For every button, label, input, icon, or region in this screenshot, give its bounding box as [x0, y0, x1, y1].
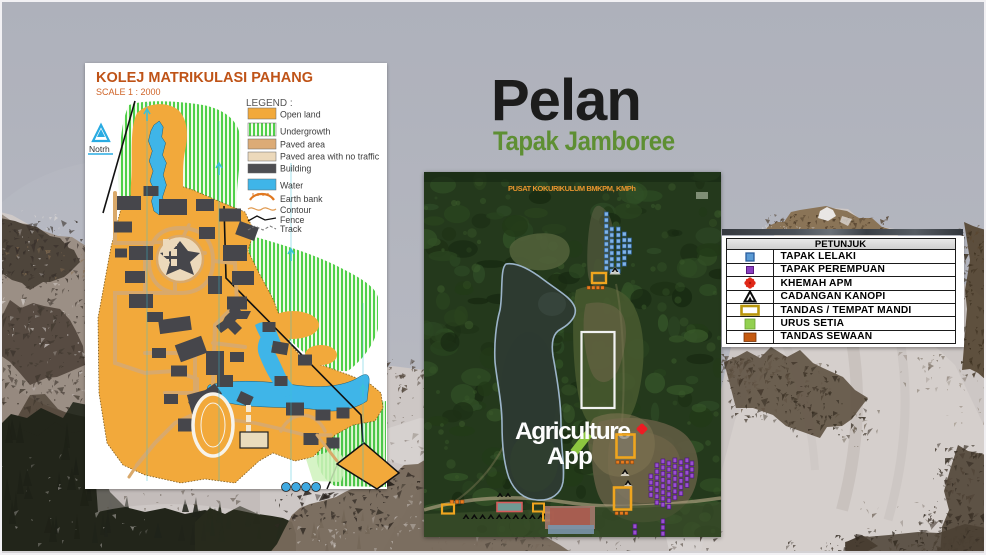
svg-text:Notrh: Notrh [89, 144, 110, 154]
svg-text:Paved area: Paved area [280, 140, 325, 150]
svg-text:Water: Water [280, 181, 303, 191]
svg-text:Contour: Contour [280, 205, 311, 215]
svg-text:Undergrowth: Undergrowth [280, 127, 330, 137]
svg-text:Track: Track [280, 224, 302, 234]
svg-text:PUSAT KOKURIKULUM BMKPM, KMPh: PUSAT KOKURIKULUM BMKPM, KMPh [508, 184, 636, 193]
svg-text:Agriculture: Agriculture [515, 418, 631, 445]
svg-text:Building: Building [280, 164, 311, 174]
svg-text:Paved area with no traffic: Paved area with no traffic [280, 152, 380, 162]
svg-text:Earth bank: Earth bank [280, 194, 323, 204]
svg-text:Open land: Open land [280, 110, 321, 120]
svg-text:LEGEND :: LEGEND : [246, 98, 293, 109]
svg-text:KOLEJ MATRIKULASI PAHANG: KOLEJ MATRIKULASI PAHANG [96, 70, 313, 86]
svg-text:App: App [547, 443, 593, 470]
svg-text:SCALE 1 : 2000: SCALE 1 : 2000 [96, 87, 161, 97]
